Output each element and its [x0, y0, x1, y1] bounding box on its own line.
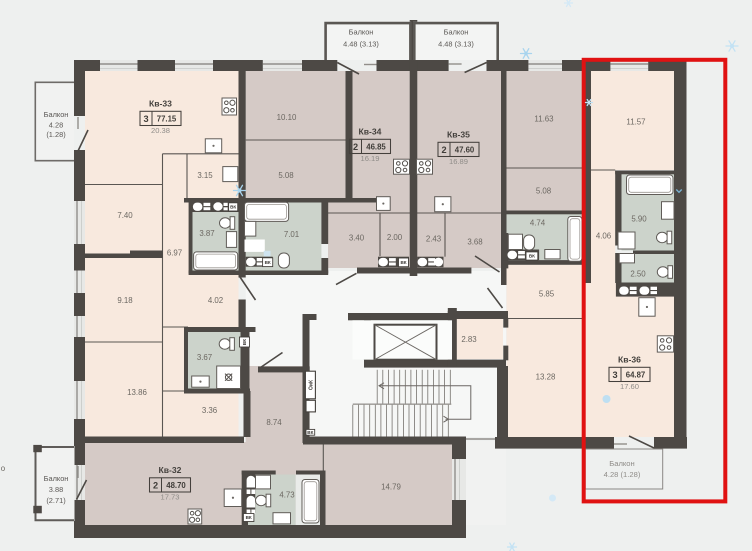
svg-text:48.70: 48.70: [166, 481, 186, 490]
svg-text:(2.71): (2.71): [46, 496, 65, 505]
svg-text:Балкон: Балкон: [44, 474, 69, 483]
svg-text:2: 2: [153, 480, 158, 490]
svg-text:ВК: ВК: [529, 254, 535, 259]
svg-text:Балкон: Балкон: [349, 28, 374, 37]
svg-text:2.43: 2.43: [426, 235, 442, 244]
svg-text:Балкон: Балкон: [609, 459, 634, 468]
svg-text:5.85: 5.85: [539, 290, 555, 299]
svg-text:16.89: 16.89: [449, 157, 468, 166]
svg-text:ВК: ВК: [307, 430, 313, 435]
svg-text:3.68: 3.68: [467, 238, 483, 247]
svg-text:7.01: 7.01: [284, 230, 299, 239]
svg-text:5.08: 5.08: [536, 187, 552, 196]
svg-text:Кв-35: Кв-35: [447, 130, 470, 140]
svg-text:8.74: 8.74: [266, 418, 282, 427]
svg-text:9.18: 9.18: [117, 296, 133, 305]
svg-text:4.02: 4.02: [208, 296, 223, 305]
svg-text:2: 2: [353, 142, 358, 152]
svg-text:16.19: 16.19: [360, 154, 379, 163]
svg-text:ВК: ВК: [230, 205, 236, 210]
svg-text:6.97: 6.97: [167, 249, 182, 258]
svg-text:3: 3: [143, 114, 148, 124]
svg-text:2.00: 2.00: [387, 233, 403, 242]
svg-text:(1.28): (1.28): [46, 130, 65, 139]
svg-text:17.73: 17.73: [160, 493, 179, 502]
svg-text:ОиК: ОиК: [308, 379, 314, 390]
svg-text:3.40: 3.40: [349, 234, 365, 243]
svg-text:4.74: 4.74: [530, 219, 546, 228]
svg-text:4.28: 4.28: [49, 121, 63, 130]
svg-text:2.50: 2.50: [630, 270, 646, 279]
svg-text:3: 3: [612, 370, 617, 380]
svg-text:Кв-36: Кв-36: [618, 355, 641, 365]
svg-text:4.48 (3.13): 4.48 (3.13): [438, 40, 474, 49]
svg-text:4.73: 4.73: [279, 491, 295, 500]
svg-text:64.87: 64.87: [626, 370, 646, 379]
svg-text:4.06: 4.06: [596, 232, 612, 241]
svg-text:Кв-33: Кв-33: [149, 99, 172, 109]
svg-text:4.48 (3.13): 4.48 (3.13): [343, 40, 379, 49]
svg-text:4.28 (1.28): 4.28 (1.28): [604, 470, 641, 479]
svg-text:7.40: 7.40: [117, 211, 133, 220]
svg-text:ВК: ВК: [246, 515, 252, 520]
svg-text:17.60: 17.60: [620, 382, 639, 391]
svg-text:3.88: 3.88: [49, 485, 63, 494]
svg-text:ВК: ВК: [265, 260, 271, 265]
svg-text:3.36: 3.36: [202, 406, 218, 415]
svg-text:20.38: 20.38: [151, 126, 170, 135]
svg-text:13.28: 13.28: [536, 373, 556, 382]
svg-text:3.67: 3.67: [197, 353, 212, 362]
svg-text:Кв-32: Кв-32: [159, 465, 182, 475]
svg-text:3.87: 3.87: [199, 229, 214, 238]
svg-text:10.10: 10.10: [277, 113, 297, 122]
svg-text:2.83: 2.83: [461, 335, 477, 344]
svg-text:Балкон: Балкон: [44, 110, 69, 119]
svg-text:5.08: 5.08: [278, 171, 294, 180]
svg-text:77.15: 77.15: [157, 114, 177, 123]
svg-text:5.90: 5.90: [631, 215, 647, 224]
svg-text:Кв-34: Кв-34: [359, 127, 382, 137]
svg-text:3.15: 3.15: [197, 171, 213, 180]
svg-text:о: о: [1, 464, 6, 473]
svg-text:2: 2: [441, 145, 446, 155]
svg-text:46.85: 46.85: [366, 142, 386, 151]
svg-text:47.60: 47.60: [455, 145, 475, 154]
svg-text:ВК: ВК: [242, 339, 247, 345]
svg-text:11.63: 11.63: [534, 115, 554, 124]
svg-text:13.86: 13.86: [127, 388, 147, 397]
svg-text:Балкон: Балкон: [444, 28, 469, 37]
svg-text:14.79: 14.79: [381, 483, 401, 492]
svg-text:ВК: ВК: [400, 260, 406, 265]
svg-text:11.57: 11.57: [626, 118, 645, 127]
